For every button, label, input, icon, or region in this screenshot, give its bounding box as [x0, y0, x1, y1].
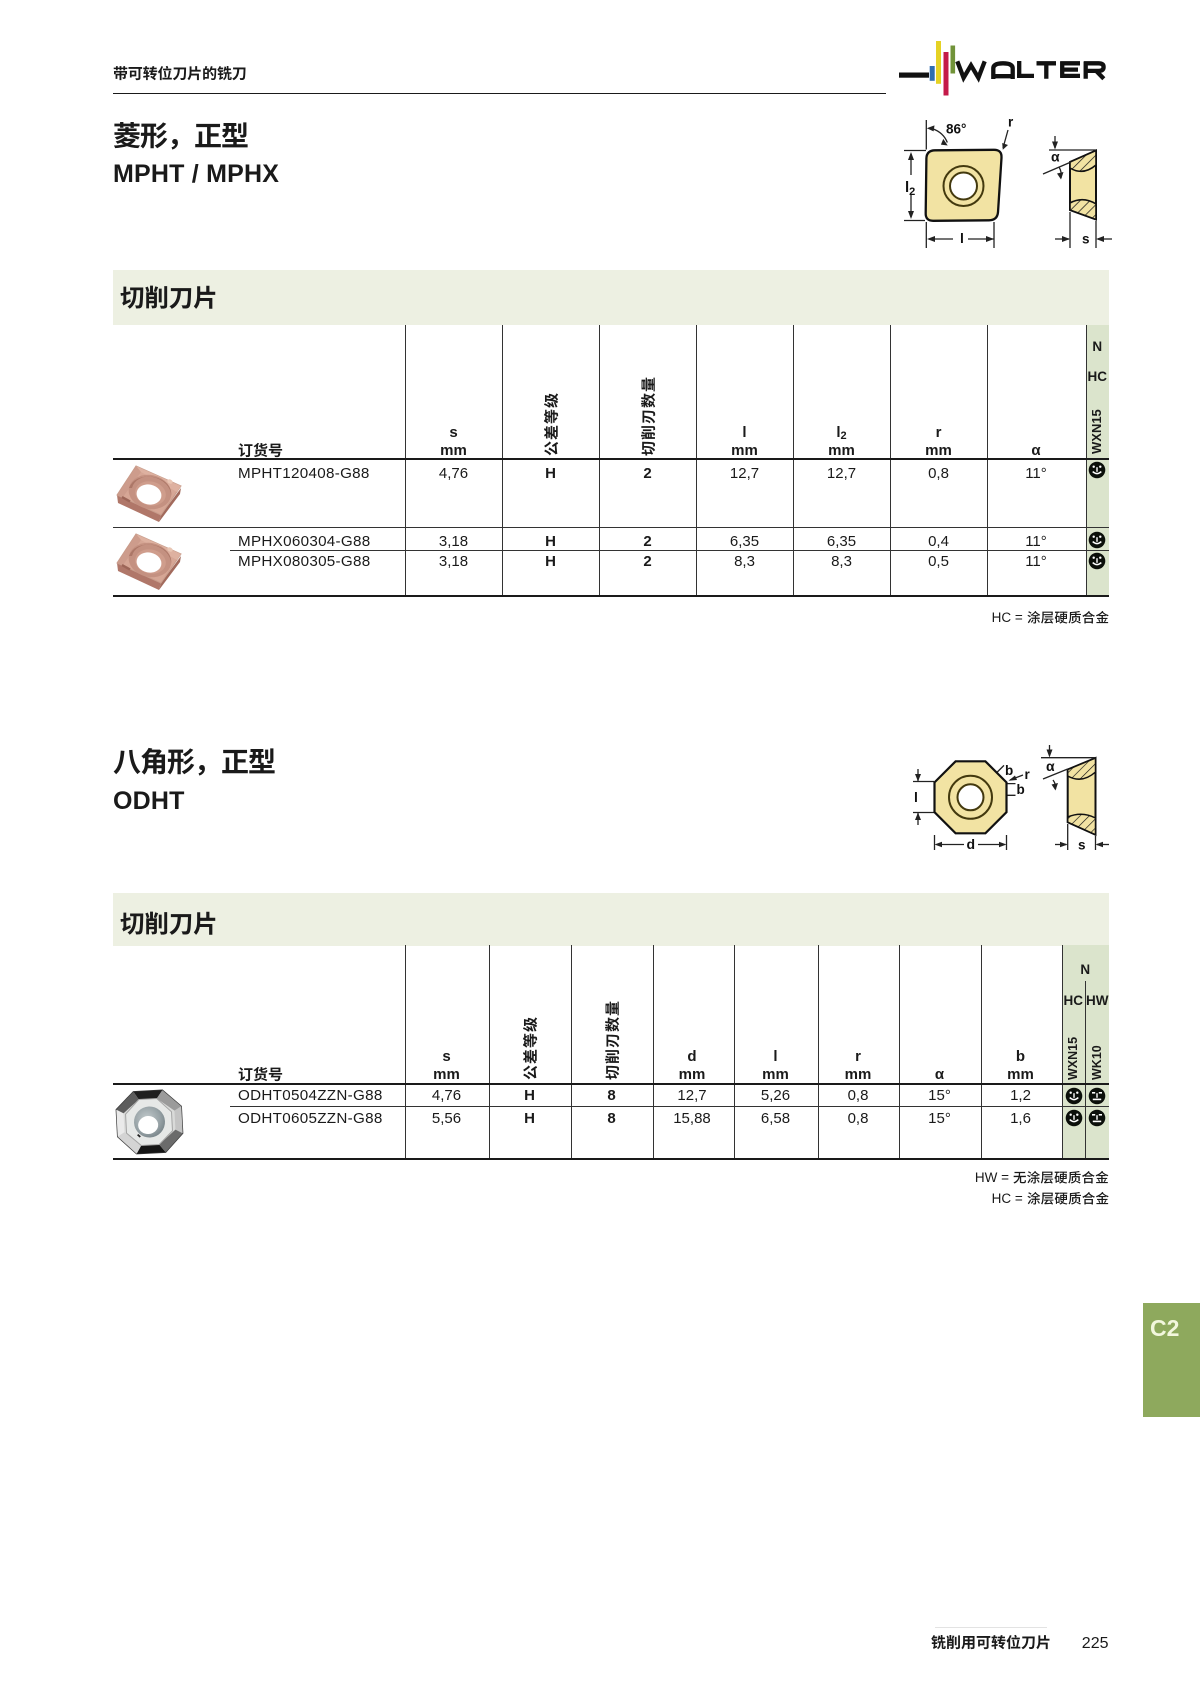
svg-text:α: α: [1046, 758, 1055, 774]
svg-text:d: d: [967, 836, 976, 852]
svg-text:l2: l2: [905, 179, 915, 198]
svg-text:r: r: [1008, 115, 1014, 130]
svg-text:b: b: [1005, 763, 1013, 778]
svg-text:l: l: [914, 789, 918, 805]
svg-text:α: α: [1051, 149, 1060, 165]
svg-text:b: b: [1017, 782, 1025, 797]
svg-text:s: s: [1082, 232, 1090, 247]
svg-text:r: r: [1025, 767, 1031, 782]
svg-text:l: l: [960, 230, 964, 246]
svg-text:86°: 86°: [946, 122, 966, 137]
svg-text:s: s: [1078, 838, 1086, 853]
